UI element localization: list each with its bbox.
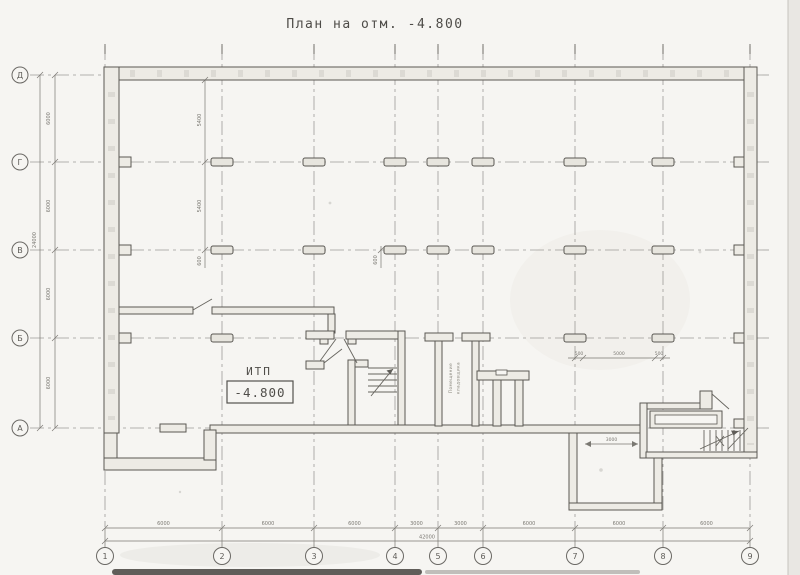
scan-blotch <box>120 543 380 567</box>
dim-label: 6000 <box>523 521 536 527</box>
pilaster-right-v <box>734 245 744 255</box>
dim-label: 6000 <box>157 521 170 527</box>
dim-label: 3000 <box>454 521 467 527</box>
clamp-stub-2 <box>515 380 523 426</box>
axis-bubble-col-5: 5 <box>430 548 447 565</box>
dim-label: 5400 <box>197 200 203 213</box>
dim-label: 500 <box>655 351 664 357</box>
door-jamb <box>320 339 328 344</box>
svg-text:6: 6 <box>480 552 485 561</box>
pilaster-right-b <box>734 333 744 343</box>
t-wall-1-cap <box>425 333 453 341</box>
bumpout-bottom <box>104 458 216 470</box>
clamp-stub-1 <box>493 380 501 426</box>
storekeeper-room-label-line2: кладовщика <box>457 362 462 394</box>
pit-wall-bottom <box>569 503 662 510</box>
partition-wall <box>398 331 405 425</box>
vestibule-wall-right <box>346 331 405 339</box>
pit-wall-right <box>654 458 662 510</box>
svg-text:4: 4 <box>392 552 397 561</box>
itp-wall-east <box>212 307 334 314</box>
dim-label: 6000 <box>46 377 52 390</box>
dim-label: 600 <box>197 256 203 266</box>
t-wall-2-cap <box>462 333 490 341</box>
pilaster-left-b <box>119 333 131 343</box>
pilaster-left-g <box>119 157 131 167</box>
svg-text:2: 2 <box>219 552 224 561</box>
dim-label: 500 <box>575 351 584 357</box>
axis-bubble-row-b: Б <box>12 330 28 346</box>
svg-text:9: 9 <box>747 552 752 561</box>
t-wall-1-stem <box>435 341 442 426</box>
pilaster-right-g <box>734 157 744 167</box>
stair2-jog <box>700 391 712 409</box>
svg-text:Г: Г <box>18 158 23 167</box>
stair-wall <box>348 360 355 425</box>
svg-text:7: 7 <box>572 552 577 561</box>
paper-edge-shade <box>788 0 800 575</box>
dim-total-label: 42000 <box>419 535 435 541</box>
wall-bottom-a <box>210 425 646 433</box>
dim-label: 6000 <box>613 521 626 527</box>
t-wall-2-stem <box>472 341 479 426</box>
svg-text:1: 1 <box>102 552 107 561</box>
scan-speck <box>329 202 332 205</box>
vestibule-wall-left <box>306 331 334 339</box>
scanned-drawing-page: План на отм. -4.800 <box>0 0 800 575</box>
svg-text:Б: Б <box>17 334 23 343</box>
svg-text:Д: Д <box>17 71 23 80</box>
axis-bubble-col-3: 3 <box>306 548 323 565</box>
itp-room-label: ИТП <box>246 365 272 378</box>
scan-speck <box>599 468 603 472</box>
dim-label: 5400 <box>197 114 203 127</box>
dim-label: 6000 <box>700 521 713 527</box>
svg-text:5: 5 <box>435 552 440 561</box>
dim-label: 3000 <box>606 437 618 443</box>
dim-total-label: 24000 <box>32 232 38 248</box>
pit-wall-left <box>569 433 577 510</box>
door-jamb <box>348 339 356 344</box>
stair2-jamb <box>734 419 744 428</box>
axis-bubble-row-v: В <box>12 242 28 258</box>
dim-label: 6000 <box>262 521 275 527</box>
axis-bubble-col-2: 2 <box>214 548 231 565</box>
scan-speck <box>179 491 181 493</box>
axis-bubble-col-9: 9 <box>742 548 759 565</box>
stair2-wall-bottom <box>646 452 757 458</box>
axis-bubble-col-7: 7 <box>567 548 584 565</box>
clamp-notch <box>496 370 507 375</box>
floor-plan-svg: План на отм. -4.800 <box>0 0 800 575</box>
axis-bubble-row-g: Г <box>12 154 28 170</box>
dim-label: 5000 <box>613 351 625 357</box>
dim-label: 6000 <box>46 288 52 301</box>
pilaster-left-v <box>119 245 131 255</box>
elevation-value: -4.800 <box>234 385 285 400</box>
wall-right <box>744 67 757 458</box>
itp-wall-west <box>119 307 193 314</box>
vestibule-stub <box>306 361 324 369</box>
dim-label: 3000 <box>410 521 423 527</box>
storekeeper-room-label-line1: Помещение <box>448 363 454 393</box>
scan-bottom-smudge-light <box>425 570 640 574</box>
dim-label: 6000 <box>46 112 52 125</box>
axis-bubble-row-a: А <box>12 420 28 436</box>
bumpout-right <box>204 430 216 460</box>
wall-pier-a <box>160 424 186 432</box>
itp-wall-connector <box>328 314 335 333</box>
axis-bubble-col-4: 4 <box>387 548 404 565</box>
axis-bubble-col-8: 8 <box>655 548 672 565</box>
dim-label: 600 <box>373 255 379 265</box>
scan-bottom-smudge <box>112 569 422 575</box>
dim-label: 6000 <box>348 521 361 527</box>
axis-bubble-row-d: Д <box>12 67 28 83</box>
svg-text:В: В <box>17 246 23 255</box>
svg-text:8: 8 <box>660 552 665 561</box>
drawing-title: План на отм. -4.800 <box>286 17 463 32</box>
dim-label: 6000 <box>46 200 52 213</box>
scan-speck <box>699 251 702 254</box>
axis-bubble-col-6: 6 <box>475 548 492 565</box>
stair2-wall-left <box>640 403 647 458</box>
axis-bubble-col-1: 1 <box>97 548 114 565</box>
svg-text:А: А <box>17 424 23 433</box>
svg-text:3: 3 <box>311 552 316 561</box>
